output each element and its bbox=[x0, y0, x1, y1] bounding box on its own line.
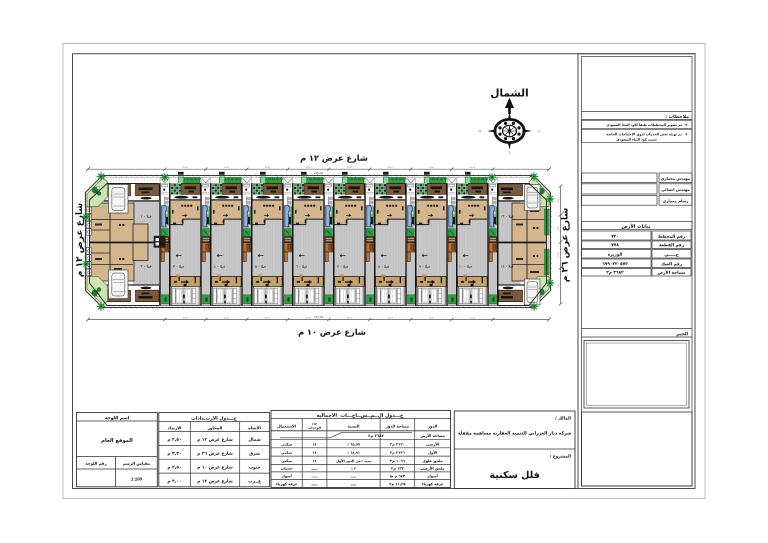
svg-text:15.00: 15.00 bbox=[469, 317, 475, 319]
svg-text:15.00: 15.00 bbox=[387, 167, 393, 169]
svg-text:210.00: 210.00 bbox=[314, 315, 324, 319]
svg-text:15.00: 15.00 bbox=[223, 317, 229, 319]
svg-text:15.00: 15.00 bbox=[346, 317, 352, 319]
svg-text:15.00: 15.00 bbox=[264, 167, 270, 169]
svg-text:15.00: 15.00 bbox=[428, 167, 434, 169]
svg-text:15.00: 15.00 bbox=[387, 317, 393, 319]
svg-text:1:100: 1:100 bbox=[131, 477, 143, 482]
svg-text:15.00: 15.00 bbox=[264, 317, 270, 319]
svg-text:235.00: 235.00 bbox=[314, 171, 324, 175]
svg-text:15.00: 15.00 bbox=[305, 167, 311, 169]
svg-text:15.00: 15.00 bbox=[182, 167, 188, 169]
svg-text:15.00: 15.00 bbox=[469, 167, 475, 169]
svg-text:15.00: 15.00 bbox=[428, 317, 434, 319]
svg-text:15.00: 15.00 bbox=[346, 167, 352, 169]
svg-text:15.00: 15.00 bbox=[223, 167, 229, 169]
svg-text:15.00: 15.00 bbox=[182, 317, 188, 319]
svg-text:15.00: 15.00 bbox=[305, 317, 311, 319]
